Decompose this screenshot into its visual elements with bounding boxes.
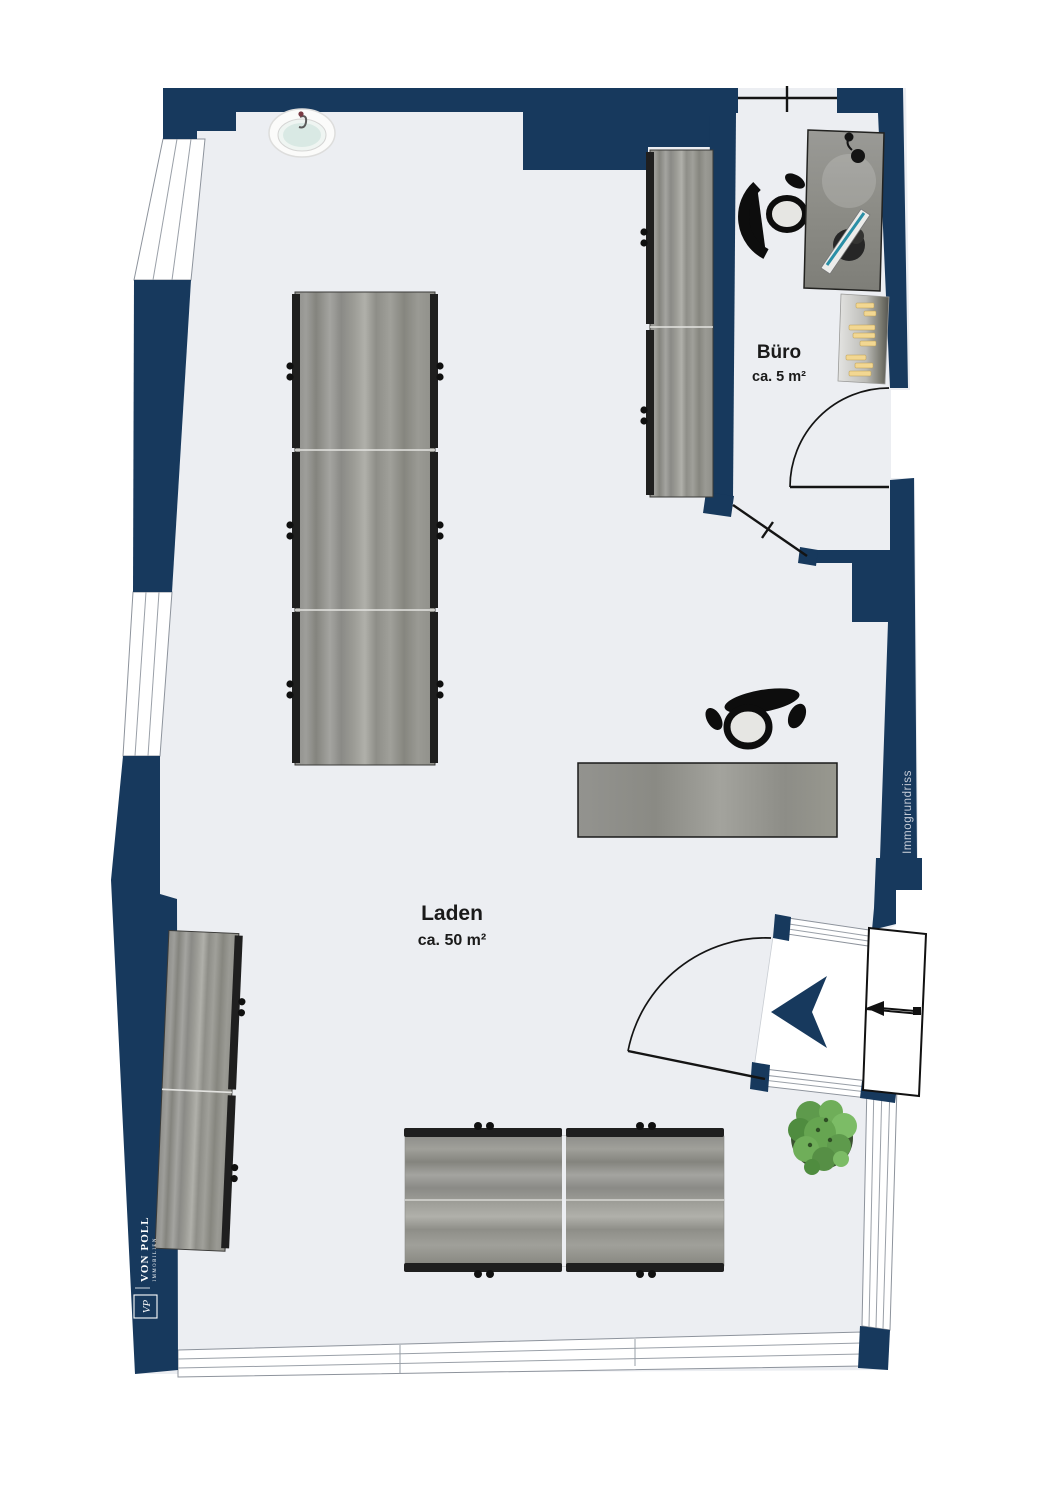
room-area: ca. 5 m² bbox=[752, 369, 806, 385]
window-right bbox=[862, 1083, 897, 1330]
radiator-shelf bbox=[838, 294, 889, 384]
door-post-nub bbox=[798, 547, 818, 566]
watermark-text: Immogrundriss bbox=[902, 770, 914, 854]
brand-name: VON POLL bbox=[139, 1216, 151, 1282]
shelf-row-center bbox=[286, 292, 443, 765]
desk-buero bbox=[804, 130, 884, 291]
brand-subtitle: IMMOBILIEN bbox=[153, 1237, 158, 1281]
entrance-exterior-panel bbox=[863, 928, 926, 1096]
room-name: Laden bbox=[421, 902, 483, 925]
room-area: ca. 50 m² bbox=[418, 932, 486, 949]
wall-right-step bbox=[872, 858, 922, 930]
floor-plan: Laden ca. 50 m² Büro ca. 5 m² Immogrundr… bbox=[0, 0, 1060, 1500]
room-name: Büro bbox=[757, 342, 801, 363]
shelf-row-right bbox=[640, 150, 713, 497]
table-group-bottom bbox=[404, 1122, 724, 1278]
checkout-counter bbox=[578, 763, 837, 837]
wall-cap-window-right-bottom bbox=[858, 1326, 890, 1370]
brand-monogram: VP bbox=[141, 1300, 153, 1314]
floor-plan-page: Laden ca. 50 m² Büro ca. 5 m² Immogrundr… bbox=[0, 0, 1060, 1500]
ceiling-lamp-icon bbox=[269, 109, 335, 157]
